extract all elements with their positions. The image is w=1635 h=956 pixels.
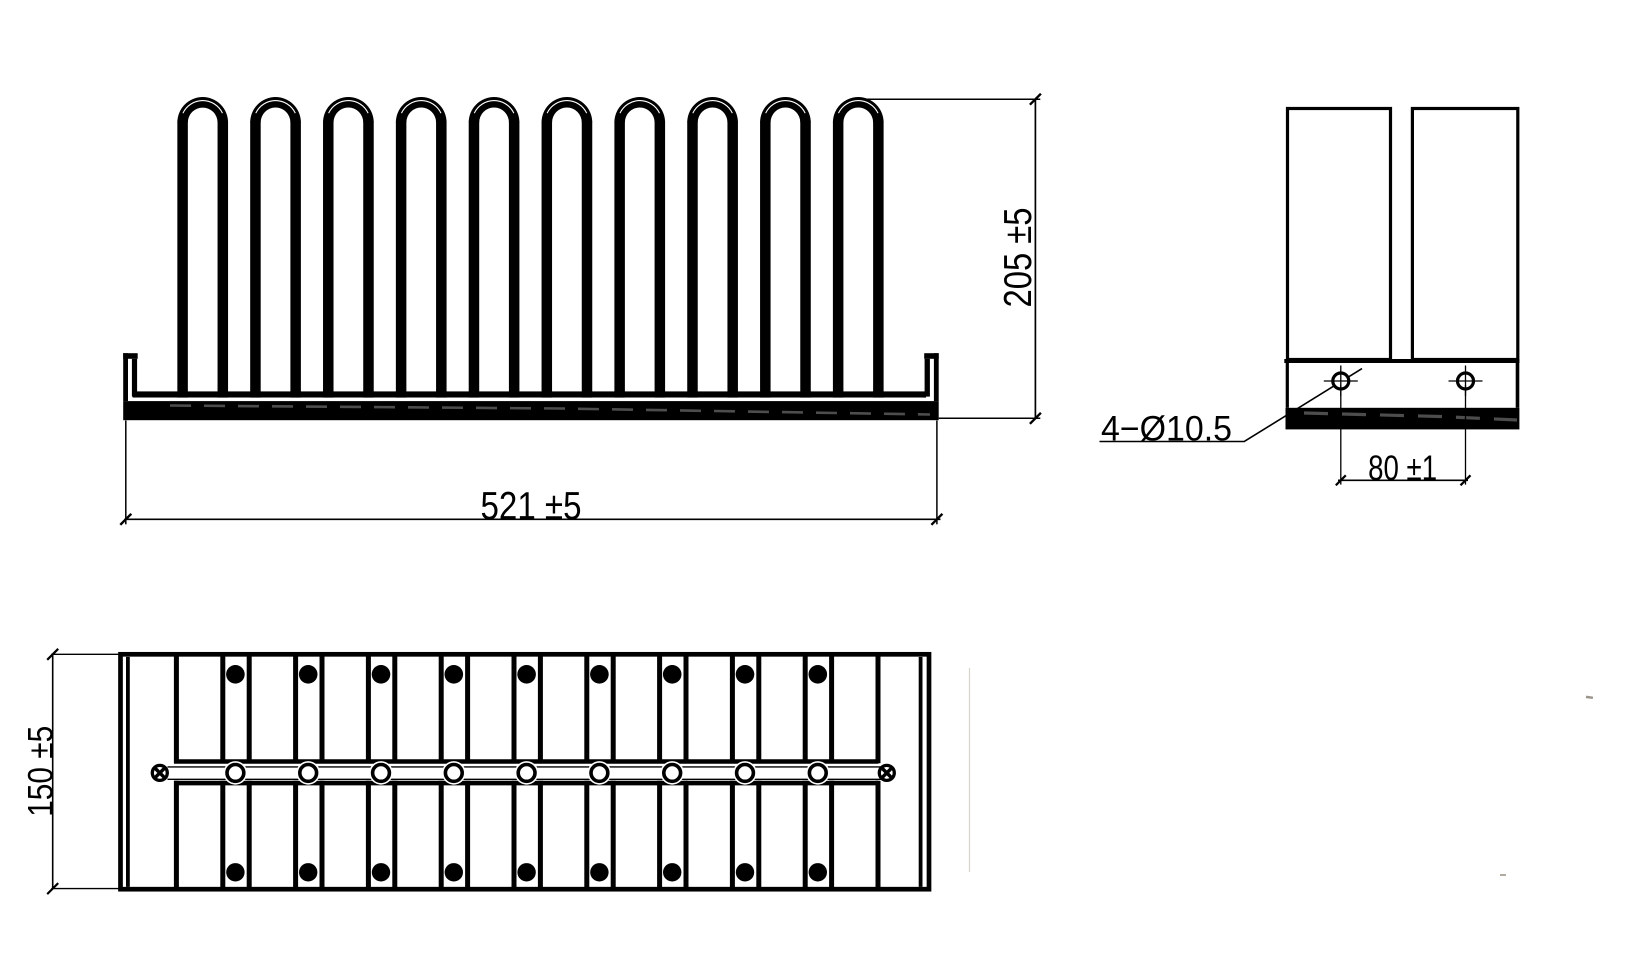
svg-text:205 ±5: 205 ±5: [997, 208, 1040, 308]
svg-text:80 ±1: 80 ±1: [1368, 449, 1437, 488]
svg-text:521 ±5: 521 ±5: [481, 485, 582, 528]
svg-text:4−Ø10.5: 4−Ø10.5: [1101, 409, 1232, 448]
svg-text:150 ±5: 150 ±5: [21, 726, 60, 817]
